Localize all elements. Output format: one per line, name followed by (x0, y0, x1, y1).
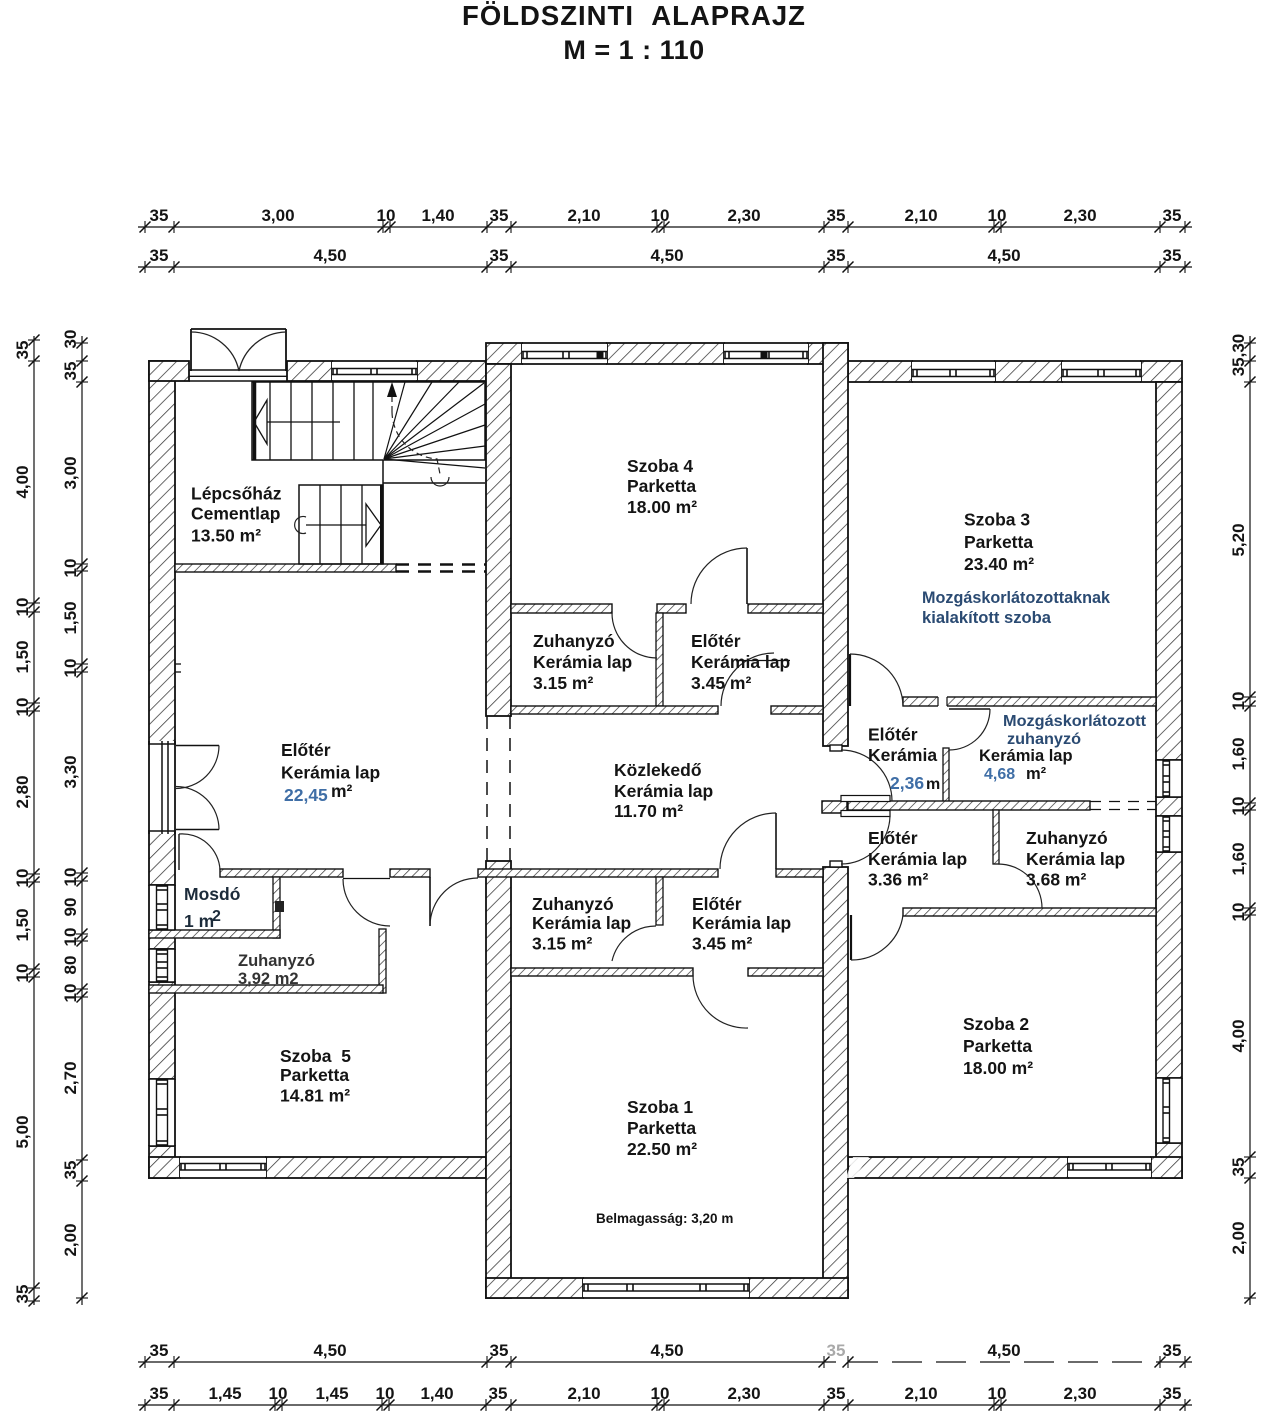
svg-text:35,30: 35,30 (1229, 334, 1248, 377)
svg-text:35: 35 (13, 1285, 32, 1304)
svg-text:Kerámia lap: Kerámia lap (533, 652, 632, 672)
svg-text:m: m (926, 776, 940, 793)
svg-text:2,10: 2,10 (567, 206, 600, 225)
svg-text:Mozgáskorlátozottaknak: Mozgáskorlátozottaknak (922, 589, 1111, 607)
svg-text:Szoba 1: Szoba 1 (627, 1097, 693, 1117)
svg-text:3,00: 3,00 (261, 206, 294, 225)
svg-text:35: 35 (1163, 246, 1182, 265)
svg-text:Parketta: Parketta (627, 1118, 696, 1138)
svg-text:22,45: 22,45 (284, 785, 328, 805)
svg-text:1,40: 1,40 (421, 206, 454, 225)
svg-text:4,68: 4,68 (984, 766, 1015, 783)
svg-text:35: 35 (1163, 206, 1182, 225)
svg-text:90: 90 (61, 898, 80, 917)
svg-text:Kerámia lap: Kerámia lap (979, 747, 1073, 765)
svg-text:Szoba 4: Szoba 4 (627, 456, 693, 476)
svg-text:35: 35 (827, 246, 846, 265)
svg-text:10: 10 (13, 598, 32, 617)
svg-text:2,30: 2,30 (727, 1384, 760, 1403)
svg-text:1,50: 1,50 (61, 601, 80, 634)
svg-text:35: 35 (490, 1341, 509, 1360)
svg-text:2: 2 (212, 908, 221, 925)
svg-text:35: 35 (490, 206, 509, 225)
svg-text:2,10: 2,10 (904, 1384, 937, 1403)
svg-text:10: 10 (651, 1384, 670, 1403)
svg-text:10: 10 (13, 964, 32, 983)
svg-text:Közlekedő: Közlekedő (614, 760, 702, 780)
svg-text:Kerámia lap: Kerámia lap (281, 763, 380, 783)
svg-text:35: 35 (489, 1384, 508, 1403)
svg-text:11.70 m²: 11.70 m² (614, 801, 683, 821)
svg-text:Parketta: Parketta (964, 532, 1033, 552)
svg-text:3.45 m²: 3.45 m² (691, 673, 751, 693)
svg-text:10: 10 (988, 206, 1007, 225)
svg-text:35: 35 (61, 362, 80, 381)
svg-text:30: 30 (61, 330, 80, 349)
svg-text:4,00: 4,00 (1229, 1019, 1248, 1052)
svg-text:2,30: 2,30 (1063, 1384, 1096, 1403)
svg-text:Cementlap: Cementlap (191, 504, 280, 524)
svg-text:Kerámia lap: Kerámia lap (691, 652, 790, 672)
svg-text:Előtér: Előtér (868, 725, 918, 745)
svg-text:1,45: 1,45 (315, 1384, 348, 1403)
svg-text:10: 10 (61, 868, 80, 887)
svg-text:4,50: 4,50 (650, 1341, 683, 1360)
svg-text:2,30: 2,30 (727, 206, 760, 225)
svg-text:1,50: 1,50 (13, 640, 32, 673)
svg-text:1,40: 1,40 (420, 1384, 453, 1403)
svg-text:4,50: 4,50 (650, 246, 683, 265)
svg-text:2,10: 2,10 (567, 1384, 600, 1403)
svg-text:M = 1 : 110: M = 1 : 110 (563, 35, 704, 65)
svg-text:3.45 m²: 3.45 m² (692, 934, 752, 954)
svg-text:4,50: 4,50 (987, 1341, 1020, 1360)
svg-text:10: 10 (269, 1384, 288, 1403)
svg-text:10: 10 (988, 1384, 1007, 1403)
svg-text:2,00: 2,00 (1229, 1221, 1248, 1254)
svg-text:35: 35 (1229, 1158, 1248, 1177)
svg-text:2,00: 2,00 (61, 1223, 80, 1256)
svg-text:3.68 m²: 3.68 m² (1026, 870, 1086, 890)
svg-text:10: 10 (1229, 692, 1248, 711)
svg-text:2,30: 2,30 (1063, 206, 1096, 225)
svg-text:10: 10 (1229, 797, 1248, 816)
svg-text:18.00 m²: 18.00 m² (963, 1058, 1033, 1078)
svg-text:Zuhanyzó: Zuhanyzó (238, 952, 315, 970)
svg-text:35: 35 (1163, 1384, 1182, 1403)
svg-text:3.15 m²: 3.15 m² (532, 934, 592, 954)
svg-text:FÖLDSZINTI ALAPRAJZ: FÖLDSZINTI ALAPRAJZ (462, 0, 806, 31)
svg-text:3.15 m²: 3.15 m² (533, 673, 593, 693)
svg-text:35: 35 (150, 246, 169, 265)
svg-text:1,60: 1,60 (1229, 737, 1248, 770)
svg-text:1,50: 1,50 (13, 908, 32, 941)
svg-text:m²: m² (1026, 765, 1047, 783)
svg-text:Belmagasság: 3,20 m: Belmagasság: 3,20 m (596, 1211, 733, 1226)
svg-text:4,50: 4,50 (987, 246, 1020, 265)
svg-text:Kerámia lap: Kerámia lap (868, 849, 967, 869)
svg-text:Lépcsőház: Lépcsőház (191, 484, 282, 504)
svg-text:35: 35 (150, 1384, 169, 1403)
svg-text:zuhanyzó: zuhanyzó (1007, 731, 1081, 748)
svg-text:Szoba 3: Szoba 3 (964, 510, 1030, 530)
svg-text:80: 80 (61, 956, 80, 975)
svg-text:10: 10 (13, 869, 32, 888)
svg-text:35: 35 (827, 206, 846, 225)
svg-text:4,00: 4,00 (13, 465, 32, 498)
svg-text:Kerámia lap: Kerámia lap (614, 781, 713, 801)
svg-text:35: 35 (827, 1384, 846, 1403)
svg-text:5,00: 5,00 (13, 1115, 32, 1148)
svg-text:10: 10 (651, 206, 670, 225)
svg-text:3,92 m2: 3,92 m2 (238, 970, 299, 988)
svg-text:Előtér: Előtér (868, 828, 918, 848)
svg-text:Mozgáskorlátozott: Mozgáskorlátozott (1003, 713, 1146, 730)
svg-text:Szoba 5: Szoba 5 (280, 1046, 351, 1066)
svg-text:Szoba 2: Szoba 2 (963, 1014, 1029, 1034)
svg-text:3,30: 3,30 (61, 755, 80, 788)
svg-text:35: 35 (150, 1341, 169, 1360)
svg-text:35: 35 (827, 1341, 846, 1360)
svg-text:3.36 m²: 3.36 m² (868, 870, 928, 890)
svg-text:10: 10 (377, 206, 396, 225)
svg-text:35: 35 (490, 246, 509, 265)
svg-text:10: 10 (376, 1384, 395, 1403)
svg-text:2,70: 2,70 (61, 1061, 80, 1094)
svg-text:Előtér: Előtér (281, 740, 331, 760)
svg-text:18.00 m²: 18.00 m² (627, 497, 697, 517)
svg-text:Előtér: Előtér (692, 894, 742, 914)
svg-text:1,45: 1,45 (208, 1384, 241, 1403)
svg-text:35: 35 (150, 206, 169, 225)
svg-text:1 m: 1 m (184, 911, 214, 931)
svg-text:4,50: 4,50 (313, 1341, 346, 1360)
svg-text:kialakított szoba: kialakított szoba (922, 609, 1052, 627)
svg-text:Parketta: Parketta (280, 1065, 349, 1085)
svg-text:23.40 m²: 23.40 m² (964, 554, 1034, 574)
svg-text:10: 10 (61, 659, 80, 678)
svg-text:Mosdó: Mosdó (184, 884, 240, 904)
svg-text:2,80: 2,80 (13, 775, 32, 808)
svg-text:Előtér: Előtér (691, 631, 741, 651)
svg-text:2,10: 2,10 (904, 206, 937, 225)
svg-text:35: 35 (1163, 1341, 1182, 1360)
svg-text:10: 10 (1229, 903, 1248, 922)
svg-text:13.50 m²: 13.50 m² (191, 526, 261, 546)
svg-text:4,50: 4,50 (313, 246, 346, 265)
svg-text:Parketta: Parketta (627, 476, 696, 496)
svg-text:Kerámia: Kerámia (868, 745, 937, 765)
svg-text:Zuhanyzó: Zuhanyzó (1026, 828, 1108, 848)
svg-text:5,20: 5,20 (1229, 523, 1248, 556)
svg-text:14.81 m²: 14.81 m² (280, 1086, 350, 1106)
svg-text:10: 10 (61, 984, 80, 1003)
svg-text:10: 10 (13, 698, 32, 717)
svg-text:Zuhanyzó: Zuhanyzó (533, 631, 615, 651)
svg-text:1,60: 1,60 (1229, 842, 1248, 875)
svg-text:22.50 m²: 22.50 m² (627, 1139, 697, 1159)
svg-text:Kerámia lap: Kerámia lap (1026, 849, 1125, 869)
svg-text:10: 10 (61, 559, 80, 578)
svg-text:Kerámia lap: Kerámia lap (532, 913, 631, 933)
svg-text:2,36: 2,36 (890, 773, 924, 793)
svg-text:Kerámia lap: Kerámia lap (692, 913, 791, 933)
svg-text:35: 35 (13, 341, 32, 360)
svg-text:m²: m² (331, 781, 353, 801)
svg-text:Zuhanyzó: Zuhanyzó (532, 894, 614, 914)
svg-text:3,00: 3,00 (61, 456, 80, 489)
svg-text:10: 10 (61, 928, 80, 947)
svg-text:35: 35 (61, 1161, 80, 1180)
svg-text:Parketta: Parketta (963, 1036, 1032, 1056)
